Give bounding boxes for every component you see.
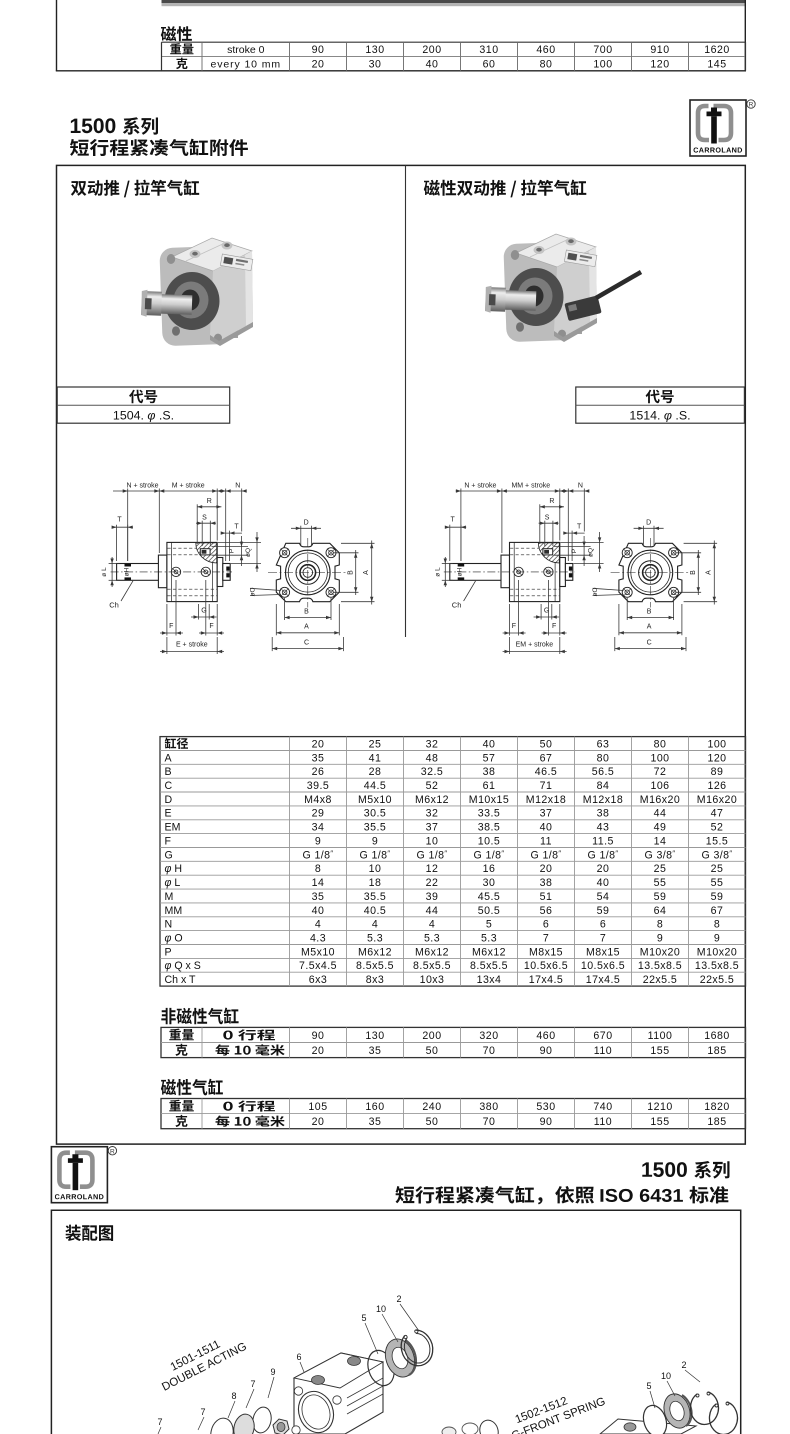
svg-text:6x3: 6x3 — [309, 974, 327, 986]
svg-text:S: S — [545, 514, 550, 521]
svg-text:M6x12: M6x12 — [358, 946, 392, 958]
svg-text:20: 20 — [312, 1045, 325, 1057]
svg-text:E + stroke: E + stroke — [176, 642, 208, 649]
svg-text:D: D — [646, 520, 651, 527]
svg-text:56.5: 56.5 — [592, 766, 614, 778]
svg-text:90: 90 — [540, 1045, 553, 1057]
svg-text:50: 50 — [426, 1045, 439, 1057]
svg-text:C: C — [304, 640, 309, 647]
svg-text:8: 8 — [657, 919, 663, 931]
svg-text:1504. φ .S.: 1504. φ .S. — [113, 409, 174, 423]
svg-text:130: 130 — [365, 1030, 384, 1042]
svg-text:200: 200 — [422, 44, 441, 56]
svg-text:T: T — [117, 517, 122, 524]
svg-text:S: S — [202, 514, 207, 521]
svg-text:8: 8 — [714, 919, 720, 931]
svg-text:64: 64 — [654, 905, 667, 917]
svg-text:E: E — [165, 808, 172, 820]
svg-text:D: D — [304, 520, 309, 527]
svg-text:N + stroke: N + stroke — [464, 483, 496, 490]
svg-text:43: 43 — [597, 822, 610, 834]
svg-text:100: 100 — [650, 752, 669, 764]
svg-text:M10x20: M10x20 — [640, 946, 680, 958]
svg-text:40: 40 — [540, 822, 553, 834]
svg-text:φ L: φ L — [165, 877, 181, 889]
svg-text:F: F — [209, 623, 213, 630]
svg-text:8: 8 — [231, 1391, 236, 1401]
svg-text:9: 9 — [657, 932, 663, 944]
svg-text:1680: 1680 — [704, 1030, 730, 1042]
svg-text:70: 70 — [483, 1116, 496, 1128]
svg-text:B: B — [304, 608, 309, 615]
svg-text:57: 57 — [483, 752, 496, 764]
svg-text:40: 40 — [312, 905, 325, 917]
svg-text:18: 18 — [369, 877, 382, 889]
svg-text:N + stroke: N + stroke — [126, 483, 158, 490]
svg-text:9: 9 — [372, 835, 378, 847]
svg-text:20: 20 — [312, 59, 325, 71]
svg-text:22x5.5: 22x5.5 — [643, 974, 678, 986]
svg-text:38: 38 — [483, 766, 496, 778]
svg-text:10.5x6.5: 10.5x6.5 — [581, 960, 625, 972]
svg-text:460: 460 — [536, 44, 555, 56]
svg-text:5: 5 — [361, 1313, 366, 1323]
svg-text:13x4: 13x4 — [477, 974, 502, 986]
svg-text:67: 67 — [711, 905, 724, 917]
svg-text:M8x15: M8x15 — [586, 946, 620, 958]
svg-text:C: C — [165, 780, 173, 792]
svg-text:16: 16 — [483, 863, 496, 875]
svg-text:7.5x4.5: 7.5x4.5 — [299, 960, 337, 972]
svg-text:13.5x8.5: 13.5x8.5 — [695, 960, 739, 972]
svg-text:10: 10 — [661, 1371, 671, 1381]
svg-text:670: 670 — [593, 1030, 612, 1042]
svg-text:30: 30 — [483, 877, 496, 889]
svg-text:40: 40 — [483, 738, 496, 750]
svg-text:øO: øO — [250, 587, 257, 596]
svg-text:20: 20 — [597, 863, 610, 875]
svg-text:M16x20: M16x20 — [640, 794, 680, 806]
svg-text:øH: øH — [457, 567, 464, 576]
svg-text:Ch: Ch — [452, 601, 462, 610]
svg-text:185: 185 — [707, 1045, 726, 1057]
svg-text:stroke 0: stroke 0 — [227, 44, 265, 56]
svg-text:11.5: 11.5 — [592, 835, 614, 847]
svg-text:4.3: 4.3 — [310, 932, 326, 944]
svg-text:8.5x5.5: 8.5x5.5 — [470, 960, 508, 972]
svg-text:øQ: øQ — [245, 548, 252, 557]
svg-text:A: A — [647, 624, 652, 631]
svg-text:7: 7 — [200, 1407, 205, 1417]
svg-text:35: 35 — [369, 1116, 382, 1128]
svg-text:G: G — [165, 849, 173, 861]
svg-text:35.5: 35.5 — [364, 891, 386, 903]
svg-text:145: 145 — [707, 59, 726, 71]
svg-text:M5x10: M5x10 — [358, 794, 392, 806]
svg-text:5: 5 — [486, 919, 492, 931]
svg-text:A: A — [363, 570, 370, 575]
svg-text:50: 50 — [426, 1116, 439, 1128]
svg-text:ø L: ø L — [101, 567, 108, 577]
svg-text:M10x15: M10x15 — [469, 794, 509, 806]
svg-text:C: C — [647, 640, 652, 647]
svg-text:39.5: 39.5 — [307, 780, 329, 792]
svg-text:9: 9 — [714, 932, 720, 944]
svg-text:R: R — [207, 498, 212, 505]
svg-text:5.3: 5.3 — [424, 932, 440, 944]
svg-text:G 1/8″: G 1/8″ — [303, 848, 334, 861]
svg-text:T: T — [451, 517, 456, 524]
svg-text:P: P — [229, 549, 236, 553]
svg-text:530: 530 — [536, 1101, 555, 1113]
svg-text:M + stroke: M + stroke — [172, 483, 205, 490]
svg-text:25: 25 — [711, 863, 724, 875]
svg-text:7: 7 — [250, 1379, 255, 1389]
svg-text:38: 38 — [597, 808, 610, 820]
svg-text:8.5x5.5: 8.5x5.5 — [413, 960, 451, 972]
svg-text:A: A — [706, 570, 713, 575]
svg-text:ø L: ø L — [434, 567, 441, 577]
svg-text:28: 28 — [369, 766, 382, 778]
svg-text:20: 20 — [312, 1116, 325, 1128]
svg-text:4: 4 — [429, 919, 435, 931]
svg-text:26: 26 — [312, 766, 325, 778]
svg-text:185: 185 — [707, 1116, 726, 1128]
svg-text:100: 100 — [593, 59, 612, 71]
svg-text:37: 37 — [426, 822, 439, 834]
svg-text:M: M — [165, 891, 174, 903]
svg-text:740: 740 — [593, 1101, 612, 1113]
svg-text:17x4.5: 17x4.5 — [586, 974, 621, 986]
svg-text:7: 7 — [543, 932, 549, 944]
svg-text:M6x12: M6x12 — [415, 794, 449, 806]
svg-text:61: 61 — [483, 780, 496, 792]
svg-text:øQ: øQ — [588, 548, 595, 557]
svg-text:8.5x5.5: 8.5x5.5 — [356, 960, 394, 972]
svg-text:1620: 1620 — [704, 44, 730, 56]
svg-text:MM: MM — [165, 905, 183, 917]
svg-text:P: P — [571, 549, 578, 553]
svg-text:5.3: 5.3 — [367, 932, 383, 944]
svg-text:320: 320 — [479, 1030, 498, 1042]
svg-text:φ Q x S: φ Q x S — [165, 960, 201, 972]
svg-text:R: R — [549, 498, 554, 505]
svg-text:52: 52 — [711, 822, 724, 834]
svg-text:55: 55 — [654, 877, 667, 889]
svg-text:EM + stroke: EM + stroke — [516, 642, 554, 649]
svg-text:F: F — [165, 835, 172, 847]
svg-text:14: 14 — [654, 835, 667, 847]
svg-text:EM: EM — [165, 822, 181, 834]
svg-text:Ch x T: Ch x T — [165, 974, 197, 986]
svg-text:44.5: 44.5 — [364, 780, 386, 792]
svg-text:F: F — [169, 623, 173, 630]
svg-text:G 1/8″: G 1/8″ — [417, 848, 448, 861]
svg-text:M4x8: M4x8 — [304, 794, 332, 806]
svg-text:40.5: 40.5 — [364, 905, 386, 917]
svg-text:34: 34 — [312, 822, 325, 834]
svg-text:380: 380 — [479, 1101, 498, 1113]
svg-text:G 3/8″: G 3/8″ — [645, 848, 676, 861]
svg-text:84: 84 — [597, 780, 610, 792]
svg-text:M8x15: M8x15 — [529, 946, 563, 958]
svg-text:D: D — [165, 794, 173, 806]
svg-text:30.5: 30.5 — [364, 808, 386, 820]
svg-text:33.5: 33.5 — [478, 808, 500, 820]
svg-text:F: F — [552, 623, 556, 630]
svg-text:6: 6 — [600, 919, 606, 931]
svg-text:17x4.5: 17x4.5 — [529, 974, 564, 986]
svg-text:11: 11 — [540, 835, 552, 847]
svg-text:R: R — [749, 102, 754, 109]
svg-text:48: 48 — [426, 752, 439, 764]
svg-text:30: 30 — [369, 59, 382, 71]
svg-text:7: 7 — [157, 1417, 162, 1427]
svg-text:22: 22 — [426, 877, 439, 889]
svg-text:29: 29 — [312, 808, 325, 820]
svg-text:1820: 1820 — [704, 1101, 730, 1113]
svg-text:14: 14 — [312, 877, 325, 889]
svg-text:45.5: 45.5 — [478, 891, 500, 903]
svg-text:54: 54 — [597, 891, 610, 903]
svg-text:10: 10 — [426, 835, 439, 847]
svg-text:44: 44 — [426, 905, 439, 917]
svg-text:A: A — [304, 624, 309, 631]
svg-text:M5x10: M5x10 — [301, 946, 335, 958]
svg-text:4: 4 — [315, 919, 321, 931]
svg-text:G 1/8″: G 1/8″ — [531, 848, 562, 861]
svg-text:B: B — [647, 608, 652, 615]
svg-text:49: 49 — [654, 822, 667, 834]
svg-text:67: 67 — [540, 752, 553, 764]
svg-text:160: 160 — [365, 1101, 384, 1113]
svg-text:80: 80 — [597, 752, 610, 764]
svg-text:T: T — [234, 523, 239, 530]
svg-text:N: N — [165, 919, 173, 931]
svg-text:20: 20 — [540, 863, 553, 875]
svg-text:38: 38 — [540, 877, 553, 889]
svg-text:25: 25 — [654, 863, 667, 875]
svg-text:øO: øO — [592, 587, 599, 596]
svg-text:200: 200 — [422, 1030, 441, 1042]
svg-text:6: 6 — [543, 919, 549, 931]
svg-text:10.5: 10.5 — [478, 835, 500, 847]
svg-text:22x5.5: 22x5.5 — [700, 974, 735, 986]
svg-text:56: 56 — [540, 905, 553, 917]
svg-text:35: 35 — [312, 752, 325, 764]
svg-text:φ O: φ O — [165, 932, 183, 944]
svg-text:øH: øH — [124, 567, 131, 576]
svg-text:126: 126 — [707, 780, 726, 792]
svg-text:700: 700 — [593, 44, 612, 56]
svg-text:A: A — [165, 752, 173, 764]
svg-text:71: 71 — [540, 780, 553, 792]
svg-text:40: 40 — [597, 877, 610, 889]
svg-text:6: 6 — [296, 1352, 301, 1362]
svg-text:80: 80 — [540, 59, 553, 71]
svg-text:8: 8 — [315, 863, 321, 875]
svg-text:72: 72 — [654, 766, 667, 778]
svg-text:90: 90 — [312, 1030, 325, 1042]
svg-text:130: 130 — [365, 44, 384, 56]
svg-text:B: B — [347, 570, 354, 575]
svg-text:51: 51 — [540, 891, 553, 903]
svg-text:10: 10 — [369, 863, 382, 875]
svg-text:10x3: 10x3 — [420, 974, 445, 986]
svg-text:M12x18: M12x18 — [583, 794, 623, 806]
svg-text:M6x12: M6x12 — [472, 946, 506, 958]
svg-text:N: N — [578, 483, 583, 490]
svg-text:100: 100 — [707, 738, 726, 750]
svg-text:80: 80 — [654, 738, 667, 750]
svg-text:Ch: Ch — [109, 601, 119, 610]
svg-text:32.5: 32.5 — [421, 766, 443, 778]
svg-text:32: 32 — [426, 738, 439, 750]
svg-text:155: 155 — [650, 1116, 669, 1128]
svg-text:63: 63 — [597, 738, 610, 750]
svg-text:1514. φ .S.: 1514. φ .S. — [629, 409, 690, 423]
svg-text:40: 40 — [426, 59, 439, 71]
svg-text:MM + stroke: MM + stroke — [511, 483, 550, 490]
svg-text:M10x20: M10x20 — [697, 946, 737, 958]
svg-text:9: 9 — [315, 835, 321, 847]
svg-text:41: 41 — [369, 752, 382, 764]
svg-text:240: 240 — [422, 1101, 441, 1113]
svg-text:32: 32 — [426, 808, 439, 820]
svg-text:5: 5 — [646, 1381, 651, 1391]
svg-text:310: 310 — [479, 44, 498, 56]
svg-text:R: R — [110, 1148, 115, 1155]
svg-text:910: 910 — [650, 44, 669, 56]
svg-text:155: 155 — [650, 1045, 669, 1057]
svg-text:9: 9 — [270, 1367, 275, 1377]
svg-text:70: 70 — [483, 1045, 496, 1057]
svg-text:90: 90 — [312, 44, 325, 56]
svg-text:10.5x6.5: 10.5x6.5 — [524, 960, 568, 972]
svg-text:50.5: 50.5 — [478, 905, 500, 917]
svg-text:120: 120 — [650, 59, 669, 71]
svg-text:T: T — [577, 523, 582, 530]
svg-text:110: 110 — [594, 1045, 612, 1057]
svg-text:M6x12: M6x12 — [415, 946, 449, 958]
svg-text:60: 60 — [483, 59, 496, 71]
svg-text:7: 7 — [600, 932, 606, 944]
svg-text:110: 110 — [594, 1116, 612, 1128]
svg-text:20: 20 — [312, 738, 325, 750]
svg-text:47: 47 — [711, 808, 724, 820]
svg-text:N: N — [235, 483, 240, 490]
svg-text:B: B — [165, 766, 172, 778]
svg-text:G 3/8″: G 3/8″ — [702, 848, 733, 861]
svg-text:G 1/8″: G 1/8″ — [474, 848, 505, 861]
svg-text:1210: 1210 — [647, 1101, 673, 1113]
svg-text:39: 39 — [426, 891, 439, 903]
svg-text:B: B — [690, 570, 697, 575]
svg-text:35.5: 35.5 — [364, 822, 386, 834]
svg-text:4: 4 — [372, 919, 378, 931]
svg-text:12: 12 — [426, 863, 439, 875]
svg-text:106: 106 — [650, 780, 669, 792]
svg-text:1100: 1100 — [648, 1030, 673, 1042]
svg-text:15.5: 15.5 — [706, 835, 728, 847]
svg-text:59: 59 — [597, 905, 610, 917]
svg-text:5.3: 5.3 — [481, 932, 497, 944]
svg-text:G 1/8″: G 1/8″ — [360, 848, 391, 861]
svg-text:37: 37 — [540, 808, 553, 820]
svg-text:M16x20: M16x20 — [697, 794, 737, 806]
svg-text:46.5: 46.5 — [535, 766, 557, 778]
svg-text:10: 10 — [376, 1304, 386, 1314]
svg-text:59: 59 — [654, 891, 667, 903]
svg-text:52: 52 — [426, 780, 439, 792]
svg-text:φ H: φ H — [165, 863, 183, 875]
svg-text:2: 2 — [396, 1294, 401, 1304]
svg-text:F: F — [512, 623, 516, 630]
svg-text:460: 460 — [536, 1030, 555, 1042]
svg-text:13.5x8.5: 13.5x8.5 — [638, 960, 682, 972]
svg-text:8x3: 8x3 — [366, 974, 384, 986]
svg-text:44: 44 — [654, 808, 667, 820]
svg-text:38.5: 38.5 — [478, 822, 500, 834]
svg-text:55: 55 — [711, 877, 724, 889]
svg-text:M12x18: M12x18 — [526, 794, 566, 806]
svg-text:every 10 mm: every 10 mm — [210, 59, 281, 71]
svg-text:105: 105 — [308, 1101, 327, 1113]
svg-text:P: P — [165, 946, 172, 958]
svg-text:35: 35 — [369, 1045, 382, 1057]
svg-text:2: 2 — [681, 1360, 686, 1370]
svg-text:50: 50 — [540, 738, 553, 750]
svg-text:G 1/8″: G 1/8″ — [588, 848, 619, 861]
svg-text:35: 35 — [312, 891, 325, 903]
svg-text:120: 120 — [707, 752, 726, 764]
svg-text:89: 89 — [711, 766, 724, 778]
svg-text:59: 59 — [711, 891, 724, 903]
svg-text:90: 90 — [540, 1116, 553, 1128]
svg-text:25: 25 — [369, 738, 382, 750]
